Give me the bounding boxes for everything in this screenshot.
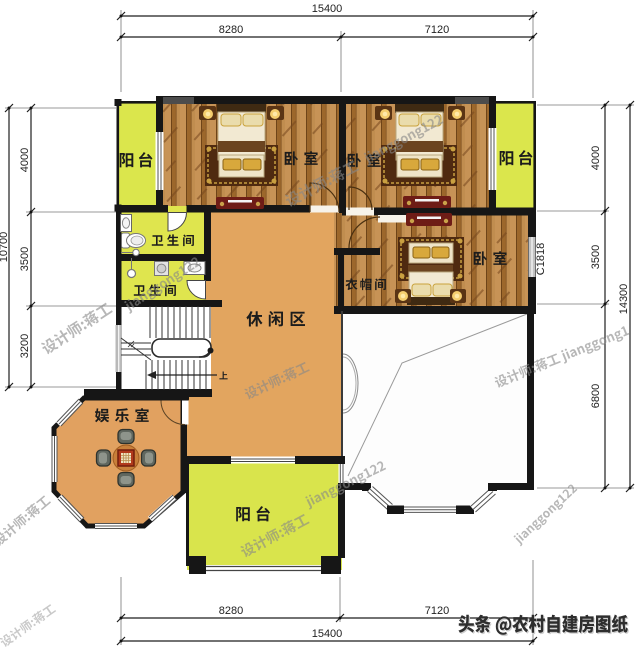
svg-text:7120: 7120 xyxy=(425,24,449,36)
svg-text:3500: 3500 xyxy=(590,245,602,269)
svg-text:10700: 10700 xyxy=(0,232,10,263)
svg-text:8280: 8280 xyxy=(219,24,243,36)
svg-text:15400: 15400 xyxy=(312,628,343,640)
svg-text:4000: 4000 xyxy=(590,146,602,170)
svg-text:3500: 3500 xyxy=(19,247,31,271)
svg-text:4000: 4000 xyxy=(19,148,31,172)
svg-text:14300: 14300 xyxy=(618,284,630,315)
svg-text:C1818: C1818 xyxy=(535,243,547,275)
svg-text:7120: 7120 xyxy=(425,605,449,617)
svg-text:15400: 15400 xyxy=(312,3,343,15)
svg-text:8280: 8280 xyxy=(219,605,243,617)
svg-text:3200: 3200 xyxy=(19,334,31,358)
svg-text:6800: 6800 xyxy=(590,384,602,408)
